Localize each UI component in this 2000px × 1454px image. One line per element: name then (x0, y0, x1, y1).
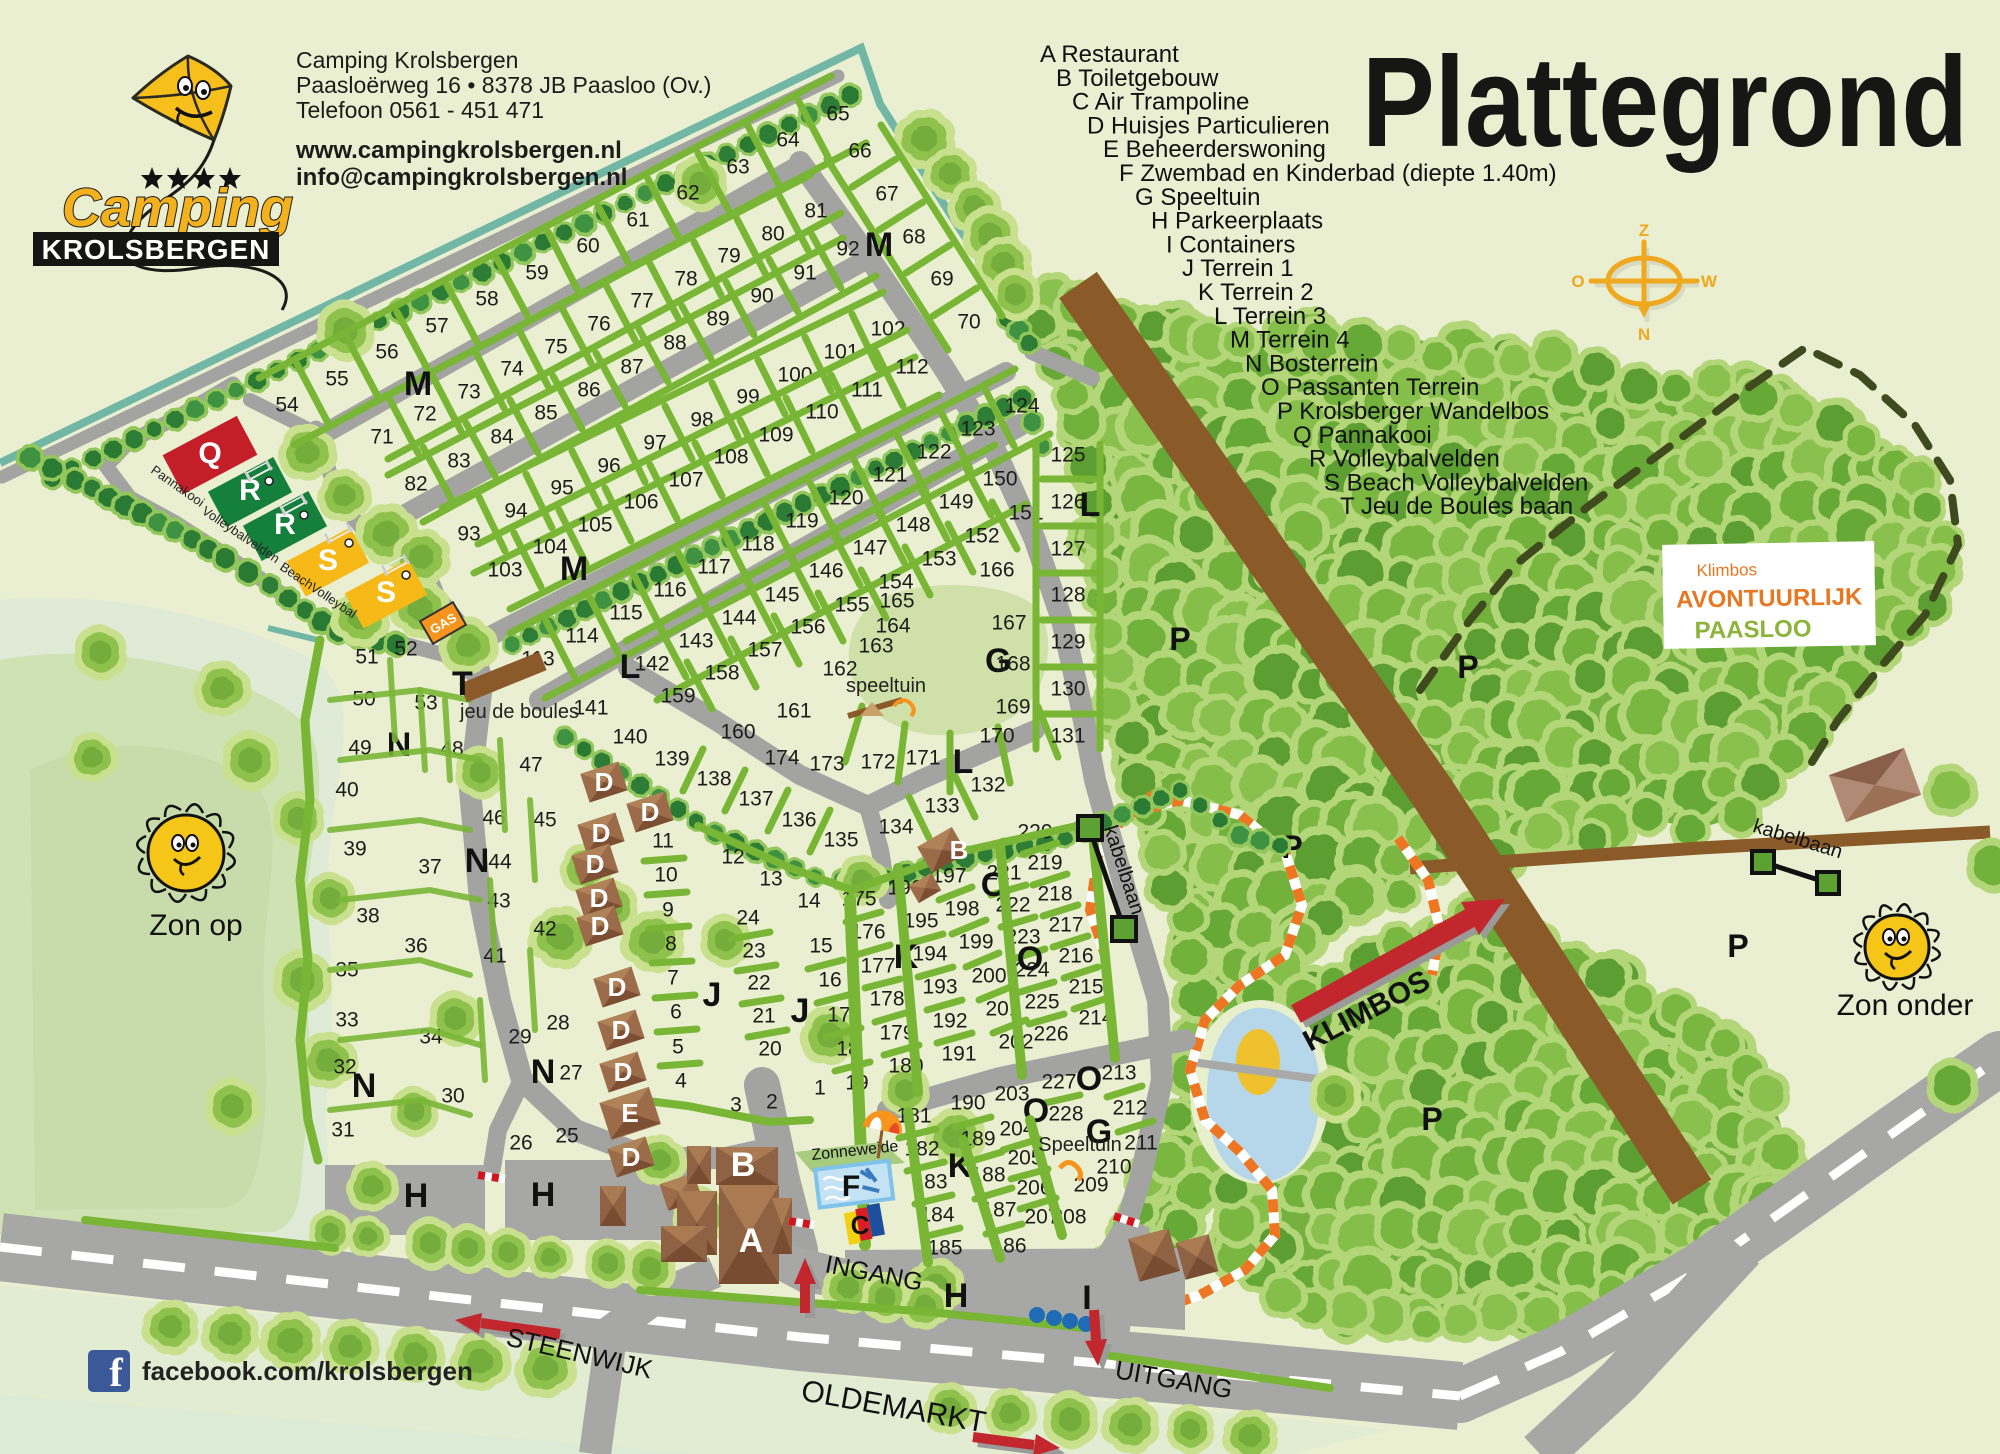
svg-text:143: 143 (678, 630, 713, 653)
svg-text:105: 105 (577, 514, 612, 537)
svg-text:13: 13 (759, 868, 782, 891)
svg-text:169: 169 (995, 696, 1030, 719)
svg-text:132: 132 (970, 774, 1005, 797)
svg-text:N: N (465, 842, 490, 880)
svg-text:64: 64 (776, 129, 800, 152)
svg-text:171: 171 (905, 747, 940, 770)
svg-text:39: 39 (343, 838, 366, 861)
svg-text:59: 59 (525, 262, 548, 285)
svg-text:jeu de boules: jeu de boules (459, 701, 579, 723)
svg-text:47: 47 (519, 754, 542, 777)
svg-text:N: N (387, 726, 412, 764)
svg-text:137: 137 (738, 788, 773, 811)
svg-text:152: 152 (964, 525, 999, 548)
svg-text:37: 37 (418, 856, 441, 879)
svg-text:215: 215 (1068, 976, 1103, 999)
svg-text:Klimbos: Klimbos (1696, 560, 1757, 580)
svg-text:185: 185 (927, 1237, 962, 1260)
svg-text:PAASLOO: PAASLOO (1694, 615, 1811, 644)
svg-text:Zon op: Zon op (149, 909, 242, 942)
svg-text:D: D (641, 797, 660, 827)
svg-text:200: 200 (971, 965, 1006, 988)
svg-text:87: 87 (620, 356, 643, 379)
svg-text:190: 190 (950, 1092, 985, 1115)
svg-text:D: D (591, 911, 610, 941)
svg-text:D: D (586, 849, 605, 879)
svg-text:60: 60 (576, 235, 599, 258)
svg-text:147: 147 (852, 537, 887, 560)
svg-text:165: 165 (879, 590, 914, 613)
svg-text:164: 164 (875, 615, 910, 638)
svg-text:70: 70 (957, 311, 980, 334)
svg-text:76: 76 (587, 313, 610, 336)
svg-text:71: 71 (370, 426, 393, 449)
svg-text:24: 24 (736, 907, 760, 930)
svg-text:D: D (622, 1142, 641, 1172)
svg-text:63: 63 (726, 156, 749, 179)
svg-text:31: 31 (331, 1119, 354, 1142)
svg-text:M: M (404, 365, 432, 403)
svg-text:S: S (376, 576, 396, 609)
svg-text:14: 14 (797, 890, 821, 913)
svg-text:145: 145 (764, 584, 799, 607)
svg-text:120: 120 (828, 487, 863, 510)
svg-text:52: 52 (394, 638, 417, 661)
svg-text:M: M (865, 226, 893, 264)
svg-text:54: 54 (275, 394, 299, 417)
svg-text:T Jeu de Boules baan: T Jeu de Boules baan (1340, 493, 1573, 520)
svg-text:f: f (109, 1350, 123, 1395)
svg-text:119: 119 (785, 510, 818, 533)
svg-text:114: 114 (565, 625, 599, 648)
svg-text:110: 110 (805, 401, 838, 424)
svg-text:W: W (1701, 272, 1718, 291)
svg-text:90: 90 (750, 285, 773, 308)
svg-text:116: 116 (653, 579, 686, 602)
svg-text:174: 174 (764, 747, 799, 770)
svg-text:195: 195 (903, 910, 938, 933)
svg-text:72: 72 (413, 403, 436, 426)
svg-text:216: 216 (1058, 945, 1093, 968)
svg-text:149: 149 (938, 491, 973, 514)
svg-text:P: P (1727, 928, 1748, 964)
svg-text:125: 125 (1050, 444, 1085, 467)
svg-text:67: 67 (875, 183, 898, 206)
svg-text:speeltuin: speeltuin (846, 675, 926, 697)
svg-text:138: 138 (696, 768, 731, 791)
svg-text:P: P (1457, 649, 1478, 685)
svg-text:8: 8 (665, 933, 677, 956)
svg-text:82: 82 (404, 473, 427, 496)
svg-text:D: D (590, 883, 609, 913)
svg-text:L: L (1080, 486, 1101, 524)
svg-text:172: 172 (860, 751, 895, 774)
svg-text:75: 75 (544, 336, 567, 359)
svg-text:148: 148 (895, 514, 930, 537)
svg-text:M: M (560, 550, 588, 588)
svg-text:74: 74 (500, 358, 524, 381)
svg-text:7: 7 (667, 967, 679, 990)
svg-text:25: 25 (555, 1125, 578, 1148)
svg-text:D: D (592, 818, 611, 848)
svg-text:198: 198 (944, 898, 979, 921)
svg-text:F: F (842, 1170, 860, 1203)
svg-text:9: 9 (662, 899, 674, 922)
svg-text:83: 83 (447, 450, 470, 473)
svg-text:130: 130 (1050, 678, 1085, 701)
svg-text:29: 29 (508, 1026, 531, 1049)
svg-text:153: 153 (921, 548, 956, 571)
svg-text:122: 122 (916, 441, 951, 464)
svg-text:D: D (612, 1015, 631, 1045)
svg-text:228: 228 (1048, 1103, 1083, 1126)
svg-text:55: 55 (325, 368, 348, 391)
svg-text:135: 135 (823, 829, 858, 852)
svg-text:26: 26 (509, 1132, 532, 1155)
svg-text:131: 131 (1050, 725, 1085, 748)
svg-text:facebook.com/krolsbergen: facebook.com/krolsbergen (142, 1356, 473, 1386)
svg-text:91: 91 (793, 262, 816, 285)
svg-text:H: H (531, 1176, 556, 1214)
svg-text:155: 155 (834, 594, 869, 617)
svg-text:N: N (1638, 325, 1650, 344)
svg-text:P: P (1421, 1101, 1442, 1137)
svg-text:170: 170 (979, 725, 1014, 748)
svg-text:22: 22 (747, 972, 770, 995)
svg-text:77: 77 (630, 290, 653, 313)
svg-text:1: 1 (814, 1077, 826, 1100)
svg-text:136: 136 (781, 809, 816, 832)
svg-text:N: N (531, 1053, 556, 1091)
svg-text:6: 6 (670, 1001, 682, 1024)
svg-text:40: 40 (335, 779, 358, 802)
svg-text:E: E (621, 1098, 638, 1128)
svg-text:info@campingkrolsbergen.nl: info@campingkrolsbergen.nl (296, 164, 627, 191)
svg-text:161: 161 (776, 700, 811, 723)
svg-text:199: 199 (958, 931, 993, 954)
svg-text:118: 118 (741, 533, 774, 556)
svg-text:36: 36 (404, 935, 427, 958)
svg-text:157: 157 (747, 639, 782, 662)
svg-text:J: J (703, 976, 722, 1014)
svg-text:115: 115 (609, 602, 642, 625)
svg-text:D: D (608, 972, 627, 1002)
svg-text:20: 20 (758, 1038, 781, 1061)
svg-text:213: 213 (1101, 1062, 1136, 1085)
svg-text:168: 168 (995, 653, 1030, 676)
svg-text:Z: Z (1639, 221, 1649, 240)
svg-text:O: O (1571, 272, 1584, 291)
svg-text:11: 11 (652, 830, 674, 853)
svg-text:D: D (595, 767, 614, 797)
svg-text:O: O (1017, 940, 1043, 978)
svg-text:62: 62 (676, 182, 699, 205)
svg-text:92: 92 (836, 238, 859, 261)
svg-text:17: 17 (827, 1004, 850, 1027)
svg-text:226: 226 (1033, 1023, 1068, 1046)
svg-text:158: 158 (704, 662, 739, 685)
svg-text:217: 217 (1048, 914, 1083, 937)
svg-text:163: 163 (858, 635, 893, 658)
svg-text:S: S (318, 544, 338, 577)
svg-text:112: 112 (895, 356, 928, 379)
svg-text:Plattegrond: Plattegrond (1362, 31, 1968, 174)
svg-text:111: 111 (851, 379, 883, 402)
svg-text:162: 162 (822, 658, 857, 681)
svg-text:109: 109 (758, 424, 793, 447)
svg-text:107: 107 (668, 469, 703, 492)
svg-text:146: 146 (808, 560, 843, 583)
svg-text:Paasloërweg 16 • 8378 JB Paasl: Paasloërweg 16 • 8378 JB Paasloo (Ov.) (296, 72, 711, 98)
svg-text:167: 167 (991, 612, 1026, 635)
svg-text:166: 166 (979, 559, 1014, 582)
svg-text:B: B (731, 1146, 756, 1184)
svg-text:134: 134 (878, 816, 913, 839)
svg-text:212: 212 (1112, 1097, 1147, 1120)
svg-text:23: 23 (742, 940, 765, 963)
svg-text:68: 68 (902, 226, 925, 249)
svg-text:129: 129 (1050, 631, 1085, 654)
svg-text:128: 128 (1050, 584, 1085, 607)
svg-text:KROLSBERGEN: KROLSBERGEN (42, 234, 271, 265)
svg-text:192: 192 (932, 1010, 967, 1033)
svg-text:211: 211 (1124, 1132, 1157, 1155)
svg-text:56: 56 (375, 341, 398, 364)
svg-text:173: 173 (809, 753, 844, 776)
svg-text:L: L (620, 648, 641, 686)
svg-text:86: 86 (577, 379, 600, 402)
svg-text:45: 45 (533, 809, 556, 832)
svg-text:A: A (739, 1222, 764, 1260)
svg-text:65: 65 (826, 103, 849, 126)
svg-text:44: 44 (488, 851, 512, 874)
svg-text:79: 79 (717, 245, 740, 268)
svg-text:78: 78 (674, 268, 697, 291)
svg-text:139: 139 (654, 748, 689, 771)
svg-text:57: 57 (425, 315, 448, 338)
svg-text:www.campingkrolsbergen.nl: www.campingkrolsbergen.nl (295, 137, 622, 164)
svg-text:10: 10 (654, 864, 677, 887)
svg-text:227: 227 (1041, 1071, 1076, 1094)
svg-text:28: 28 (546, 1012, 569, 1035)
svg-text:2: 2 (766, 1091, 778, 1114)
svg-text:T: T (452, 665, 473, 703)
svg-text:218: 218 (1037, 883, 1072, 906)
svg-text:191: 191 (941, 1043, 976, 1066)
svg-text:160: 160 (720, 721, 755, 744)
svg-text:140: 140 (612, 726, 647, 749)
svg-text:103: 103 (487, 559, 522, 582)
svg-text:16: 16 (818, 969, 841, 992)
svg-text:N: N (352, 1067, 377, 1105)
svg-text:108: 108 (713, 446, 748, 469)
svg-text:58: 58 (475, 288, 498, 311)
svg-text:38: 38 (356, 905, 379, 928)
svg-text:Camping Krolsbergen: Camping Krolsbergen (296, 47, 518, 73)
svg-text:B: B (950, 835, 969, 865)
svg-text:85: 85 (534, 402, 557, 425)
svg-text:177: 177 (860, 955, 895, 978)
svg-text:225: 225 (1024, 991, 1059, 1014)
svg-text:Camping: Camping (62, 178, 293, 238)
svg-text:84: 84 (490, 426, 514, 449)
svg-text:5: 5 (672, 1036, 684, 1059)
svg-text:4: 4 (675, 1070, 687, 1093)
svg-text:51: 51 (355, 646, 378, 669)
svg-text:178: 178 (869, 988, 904, 1011)
svg-text:106: 106 (623, 491, 658, 514)
svg-text:P: P (1169, 621, 1190, 657)
svg-text:H: H (404, 1177, 429, 1215)
svg-text:144: 144 (721, 607, 756, 630)
svg-text:Speeltuin: Speeltuin (1038, 1134, 1121, 1156)
svg-text:15: 15 (809, 935, 832, 958)
svg-text:89: 89 (706, 308, 729, 331)
svg-text:Zon onder: Zon onder (1837, 989, 1974, 1022)
svg-text:156: 156 (790, 616, 825, 639)
svg-text:27: 27 (559, 1062, 582, 1085)
svg-text:61: 61 (626, 209, 649, 232)
svg-text:69: 69 (930, 268, 953, 291)
svg-text:88: 88 (663, 332, 686, 355)
svg-text:33: 33 (335, 1009, 358, 1032)
svg-text:133: 133 (924, 795, 959, 818)
svg-text:124: 124 (1004, 395, 1039, 418)
svg-text:H: H (944, 1277, 969, 1315)
svg-text:C: C (851, 1210, 870, 1240)
svg-text:73: 73 (457, 381, 480, 404)
svg-text:30: 30 (441, 1085, 464, 1108)
svg-text:150: 150 (982, 468, 1017, 491)
svg-text:21: 21 (752, 1005, 775, 1028)
svg-text:193: 193 (922, 976, 957, 999)
svg-text:66: 66 (848, 140, 871, 163)
svg-text:Q: Q (198, 437, 221, 470)
svg-text:L: L (953, 743, 974, 781)
svg-text:D: D (614, 1057, 633, 1087)
svg-text:42: 42 (533, 918, 556, 941)
svg-text:J: J (791, 992, 810, 1030)
svg-text:O: O (1076, 1060, 1102, 1098)
svg-text:117: 117 (697, 556, 730, 579)
svg-text:121: 121 (872, 464, 907, 487)
svg-text:219: 219 (1027, 852, 1062, 875)
svg-text:127: 127 (1050, 538, 1085, 561)
svg-text:Telefoon 0561 - 451 471: Telefoon 0561 - 451 471 (296, 97, 544, 123)
svg-text:123: 123 (960, 418, 995, 441)
svg-text:AVONTUURLIJK: AVONTUURLIJK (1676, 583, 1863, 613)
svg-text:159: 159 (660, 685, 695, 708)
